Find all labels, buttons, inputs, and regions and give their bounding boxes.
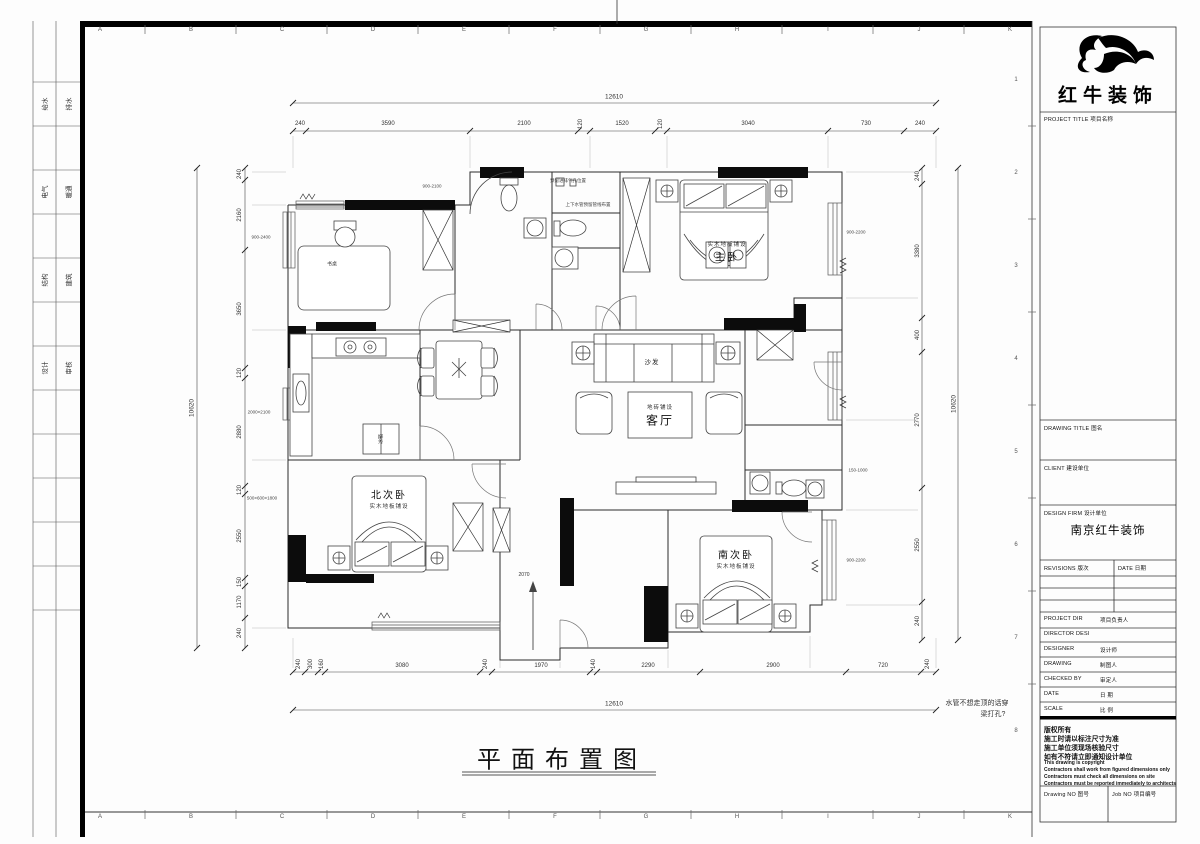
dim-label: 730 [861,121,871,127]
tb-row-cn: 项目负责人 [1100,616,1129,624]
grid-number: 6 [1014,542,1017,548]
tb-row-label: DIRECTOR DESI [1044,631,1090,637]
grid-number: 8 [1014,728,1017,734]
sheet-frame [80,0,1036,837]
dim-label: 2100 [517,121,530,127]
tb-row-label: DESIGNER [1044,646,1074,652]
dim-label: 120 [237,485,243,495]
grid-letter: K [1008,27,1012,33]
dim-overall-right: 10620 [951,395,958,413]
plan-title: 平面布置图 [477,740,647,775]
annotation: 900-2200 [846,230,865,235]
dim-label: 120 [578,119,584,129]
left-strip [33,21,80,837]
tb-job-no-label: Job NO 项目编号 [1112,790,1156,798]
tb-copyright-line: Contractors must check all dimensions on… [1044,774,1155,780]
dim-label: 240 [237,169,243,179]
tb-client-label: CLIENT 建设单位 [1044,464,1089,472]
tb-row-cn: 日 期 [1100,691,1113,699]
dim-label: 120 [237,368,243,378]
dim-label: 240 [295,121,305,127]
stamp-label: 建筑 [63,274,73,287]
dim-label: 2880 [237,425,243,438]
tb-copyright-line: This drawing is copyright [1044,760,1105,766]
sheet-linework [0,0,1200,844]
dim-overall-top: 12610 [605,94,623,101]
desk-label: 书桌 [327,261,337,268]
stamp-label: 暖通 [63,186,73,199]
grid-letter: F [553,814,557,820]
brand-name: 红牛装饰 [1058,81,1158,108]
room-sub-living: 地砖铺设 [647,403,673,411]
drawing-sheet: { "sheet": { "grid_letters": ["A","B","C… [0,0,1200,844]
grid-letter: H [735,814,739,820]
grid-letter: G [644,27,649,33]
grid-letter: A [98,27,102,33]
grid-letter: H [735,27,739,33]
room-sub-north: 实木地板铺设 [369,502,408,510]
tb-row-label: CHECKED BY [1044,676,1082,682]
tb-row-label: DATE [1044,691,1059,697]
stamp-label: 审核 [63,362,73,375]
grid-letter: D [371,27,375,33]
dim-label: 1170 [237,596,243,609]
grid-letter: J [918,814,921,820]
bull-logo-icon [1078,35,1154,73]
stamp-label: 设计 [39,362,49,375]
dim-label: 3040 [741,121,754,127]
room-sub-master: 实木地板铺设 [707,240,746,248]
room-label-south: 南次卧 [718,547,754,562]
grid-letter: G [644,814,649,820]
grid-letter: F [553,27,557,33]
tb-drawing-title-label: DRAWING TITLE 图名 [1044,424,1103,432]
dim-label: 240 [915,616,921,626]
dim-label: 150 [237,577,243,587]
grid-letter: C [280,27,284,33]
annotation: 150-1000 [848,468,867,473]
grid-number: 4 [1014,356,1017,362]
tb-drawing-no-label: Drawing NO 图号 [1044,790,1089,798]
grid-letter: J [918,27,921,33]
tb-copyright-line: Contractors must be reported immediately… [1044,781,1176,787]
annotation: 上下水管预留管线布置 [566,202,611,208]
stamp-label: 电气 [39,186,49,199]
annotation: 900-2100 [422,184,441,189]
dim-label: 2550 [237,529,243,542]
dim-label: 140 [591,659,597,669]
grid-letter: I [827,27,829,33]
sofa-label: 沙发 [645,356,660,366]
dim-overall-bottom: 12610 [605,701,623,708]
dim-label: 240 [296,659,302,669]
dim-label: 1970 [534,663,547,669]
dim-label: 240 [925,659,931,669]
room-sub-south: 实木地板铺设 [716,562,755,570]
entry-dim: 2070 [518,572,529,578]
dim-label: 160 [319,659,325,669]
tb-design-firm-value: 南京红牛装饰 [1071,522,1146,538]
annotation: 900-2400 [251,235,270,240]
dim-label: 2900 [766,663,779,669]
fridge-label: 冰箱 [378,434,385,444]
grid-number: 3 [1014,263,1017,269]
tb-row-cn: 设计师 [1100,646,1117,654]
tb-revisions-date-label: DATE 日期 [1118,564,1146,572]
dim-label: 240 [237,628,243,638]
grid-letter: A [98,814,102,820]
grid-number: 5 [1014,449,1017,455]
dim-label: 240 [483,659,489,669]
tb-row-cn: 比 例 [1100,706,1113,714]
tb-row-label: DRAWING [1044,661,1072,667]
dim-label: 120 [658,119,664,129]
dim-label: 2160 [237,208,243,221]
dim-label: 3590 [381,121,394,127]
tb-design-firm-label: DESIGN FIRM 设计单位 [1044,509,1107,517]
dim-label: 1520 [615,121,628,127]
annotation: 2000×2100 [248,410,271,415]
tb-project-title-label: PROJECT TITLE 项目名称 [1044,115,1113,123]
dim-label: 2770 [915,413,921,426]
tb-copyright-line: Contractors shall work from figured dime… [1044,767,1170,773]
tb-revisions-label: REVISIONS 版次 [1044,564,1089,572]
dim-label: 720 [878,663,888,669]
pipe-note-line1: 水管不想走顶的话穿 [946,698,1009,708]
grid-letter: C [280,814,284,820]
dim-label: 2550 [915,538,921,551]
tb-row-label: PROJECT DIR [1044,616,1083,622]
dim-label: 240 [915,171,921,181]
annotation: 500×600×1800 [247,496,277,501]
annotation: 900-2200 [846,558,865,563]
tb-row-label: SCALE [1044,706,1063,712]
annotation: 预留进排气孔位置 [550,178,586,184]
grid-number: 1 [1014,77,1017,83]
grid-letter: K [1008,814,1012,820]
grid-letter: I [827,814,829,820]
tb-row-cn: 审定人 [1100,676,1117,684]
dim-overall-left: 10620 [189,399,196,417]
dim-label: 2290 [641,663,654,669]
stamp-label: 排水 [63,98,73,111]
room-label-north: 北次卧 [371,487,407,502]
grid-letter: B [189,27,193,33]
dim-label: 3080 [395,663,408,669]
entry-arrow [529,581,537,650]
stamp-label: 结构 [39,274,49,287]
grid-letter: E [462,27,466,33]
room-label-master: 主卧 [715,249,739,264]
pipe-note-line2: 梁打孔? [981,709,1006,719]
dim-label: 400 [915,330,921,340]
tb-row-cn: 制图人 [1100,661,1117,669]
grid-letter: E [462,814,466,820]
dim-label: 3380 [915,244,921,257]
room-label-living: 客厅 [646,412,674,429]
dim-label: 300 [308,659,314,669]
stamp-label: 给水 [39,98,49,111]
dim-label: 240 [915,121,925,127]
grid-letter: D [371,814,375,820]
grid-letter: B [189,814,193,820]
grid-number: 7 [1014,635,1017,641]
dim-label: 3650 [237,302,243,315]
grid-number: 2 [1014,170,1017,176]
